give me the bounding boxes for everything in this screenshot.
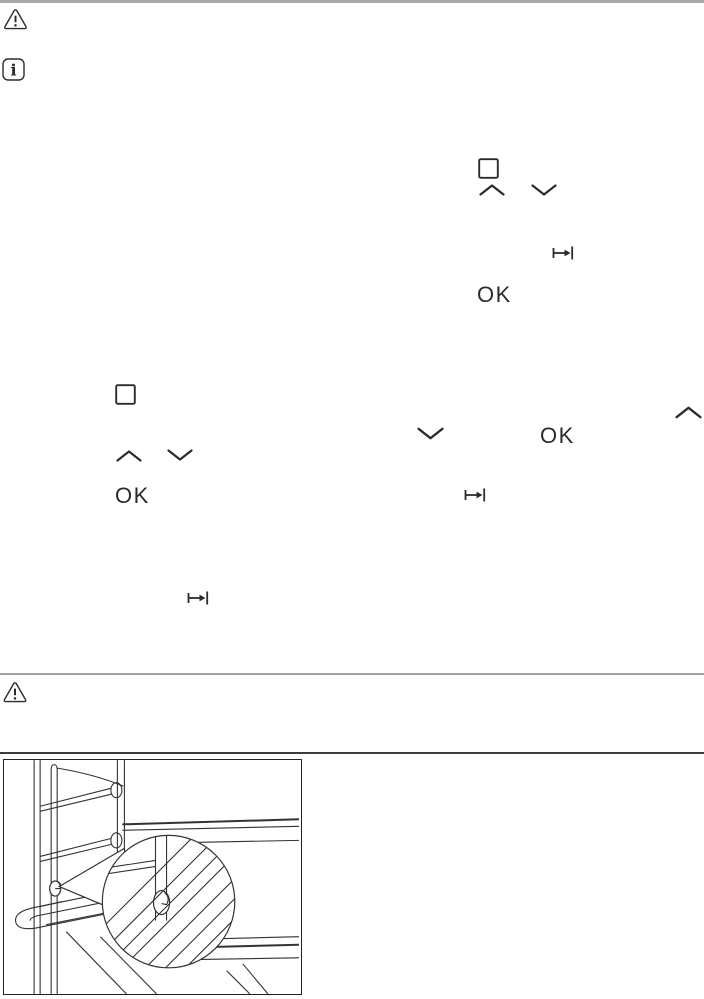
- section-divider: [0, 673, 704, 675]
- warning-triangle-icon: [2, 681, 28, 709]
- chevron-up-icon: [675, 406, 702, 424]
- arrow-to-bar-icon: [187, 590, 209, 611]
- ok-button-label: OK: [115, 485, 150, 507]
- arrow-to-bar-icon: [464, 487, 486, 508]
- section-divider: [0, 752, 704, 754]
- chevron-down-icon: [167, 448, 193, 466]
- display-frame-icon: [115, 384, 136, 410]
- arrow-to-bar-icon: [552, 245, 574, 266]
- chevron-down-icon: [417, 427, 444, 445]
- oven-shelf-drawing: [4, 760, 301, 994]
- manual-page: i OK: [0, 0, 704, 999]
- ok-button-label: OK: [540, 425, 575, 447]
- top-accent-bar: [0, 0, 704, 3]
- oven-shelf-figure: [3, 759, 302, 995]
- display-frame-icon: [478, 158, 499, 184]
- chevron-up-icon: [116, 449, 142, 467]
- ok-button-label: OK: [477, 284, 512, 306]
- chevron-up-icon: [479, 183, 505, 201]
- warning-triangle-icon: [3, 8, 28, 36]
- chevron-down-icon: [531, 183, 557, 201]
- info-icon: i: [2, 58, 25, 86]
- svg-text:i: i: [10, 61, 16, 80]
